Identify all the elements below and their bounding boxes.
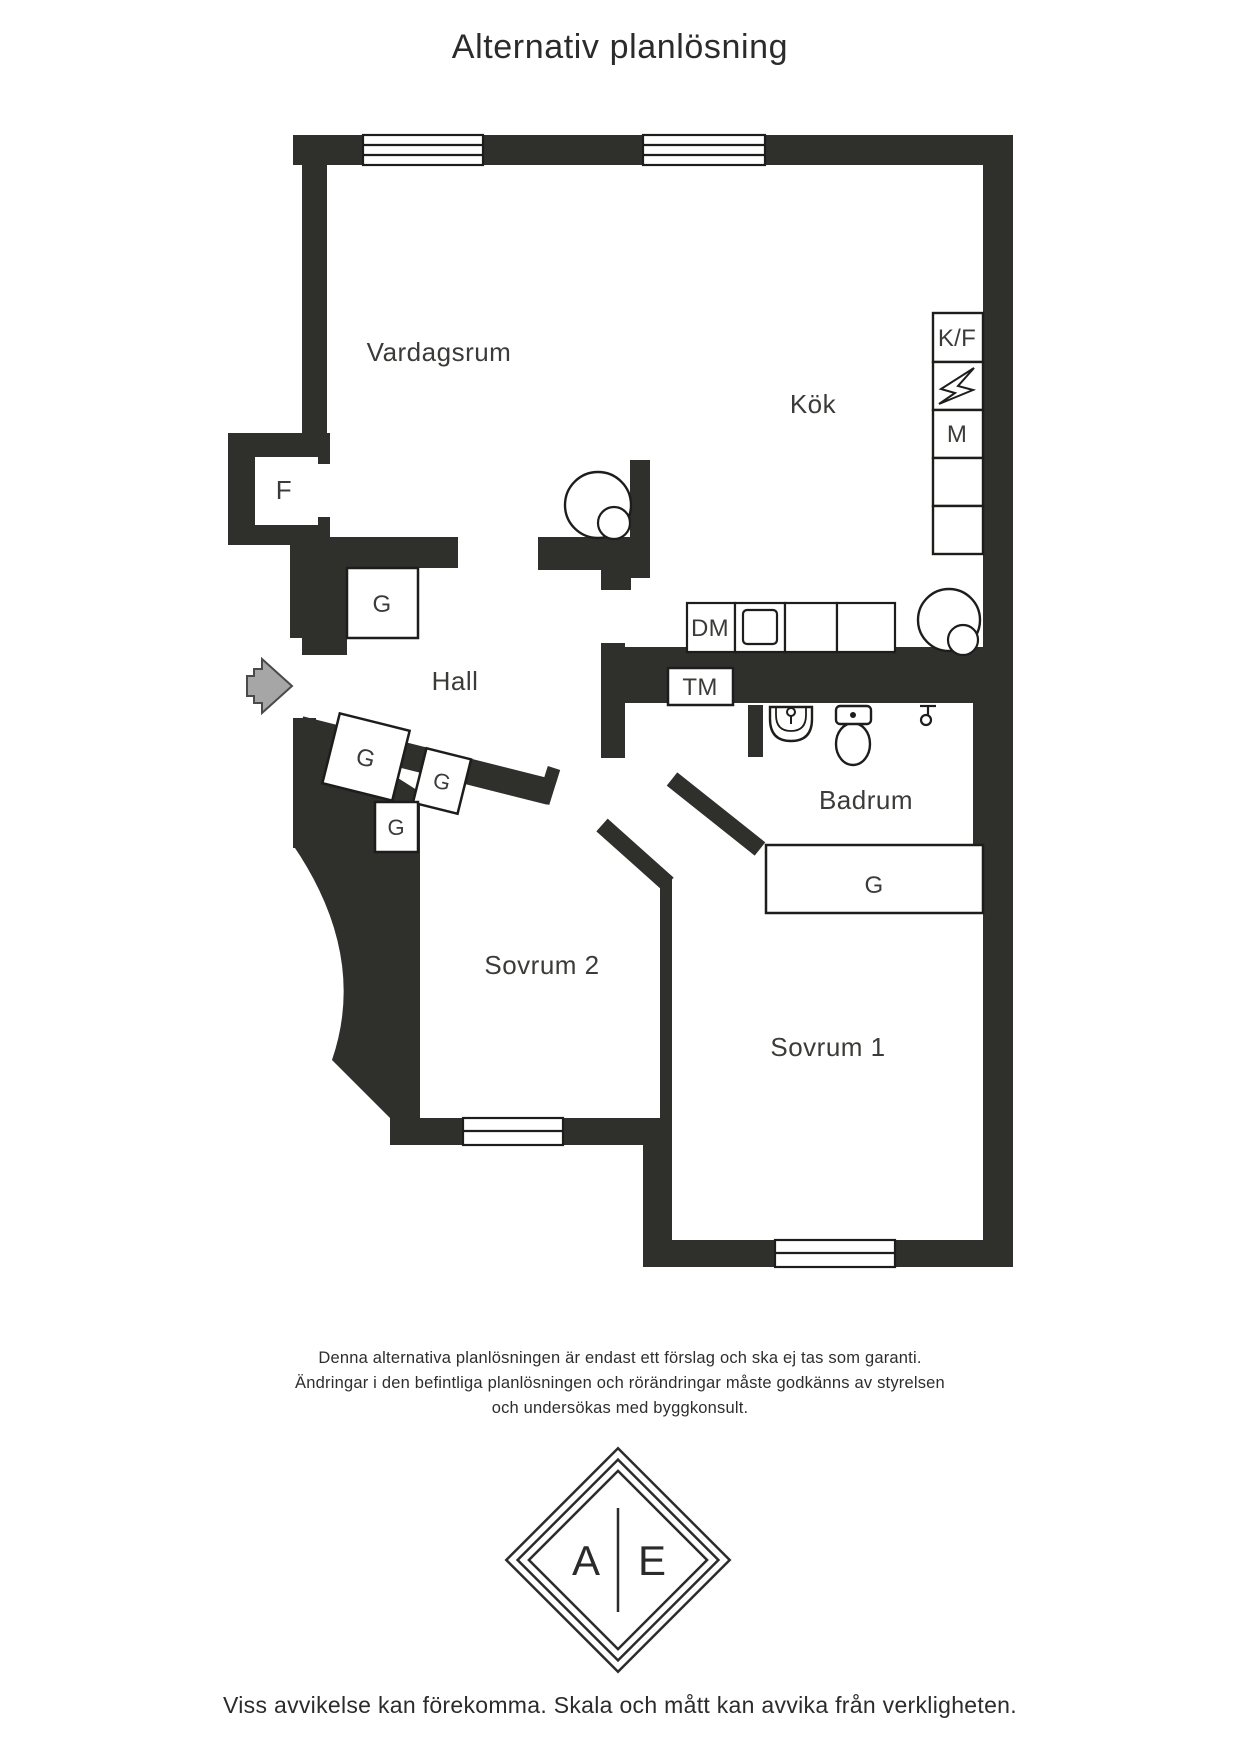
walls [228,135,1013,1267]
label-wardrobe-hall: G [373,591,392,618]
disclaimer-text: Denna alternativa planlösningen är endas… [0,1346,1240,1421]
label-fridge-freezer: K/F [938,325,976,352]
room-label-hall: Hall [432,666,479,696]
window-icon [463,1118,563,1145]
room-label-sovrum1: Sovrum 1 [770,1032,885,1062]
logo-letter-right: E [638,1537,666,1584]
closet-f-interior [255,457,330,525]
label-microwave: M [947,421,967,448]
round-sink-inner-icon [948,625,978,655]
kitchen-fixtures [565,313,983,655]
toilet-icon [836,706,871,765]
floorplan-drawing: Vardagsrum Kök Hall Badrum Sovrum 2 Sovr… [0,0,1240,1754]
door-swing-inner-icon [598,507,630,539]
room-label-sovrum2: Sovrum 2 [484,950,599,980]
counter-box [785,603,837,652]
counter-box [837,603,895,652]
faucet-icon [920,706,936,725]
disclaimer-line-3: och undersökas med byggkonsult. [0,1396,1240,1421]
footer-note: Viss avvikelse kan förekomma. Skala och … [0,1692,1240,1719]
window-icon [643,135,765,165]
bathroom-fixtures [770,706,936,765]
room-label-vardagsrum: Vardagsrum [367,337,512,367]
window-icon [363,135,483,165]
sink-icon [770,707,812,741]
label-wardrobe-3: G [387,815,404,840]
disclaimer-line-2: Ändringar i den befintliga planlösningen… [0,1371,1240,1396]
label-wardrobe-sovrum1: G [865,872,884,899]
closet-f-jamb-top [318,452,330,464]
entry-arrow-icon [247,659,292,713]
label-washing-machine: TM [682,674,717,701]
logo-letter-left: A [572,1537,600,1584]
cabinet-box [933,506,983,554]
room-label-kok: Kök [790,389,837,419]
closet-f-jamb-bottom [318,517,330,530]
window-icon [775,1240,895,1267]
floorplan-page: Alternativ planlösning [0,0,1240,1754]
label-dishwasher: DM [691,615,729,642]
room-label-badrum: Badrum [819,785,913,815]
label-closet-f: F [276,475,292,505]
agency-logo: A E [506,1448,729,1671]
disclaimer-line-1: Denna alternativa planlösningen är endas… [0,1346,1240,1371]
cabinet-box [933,458,983,506]
